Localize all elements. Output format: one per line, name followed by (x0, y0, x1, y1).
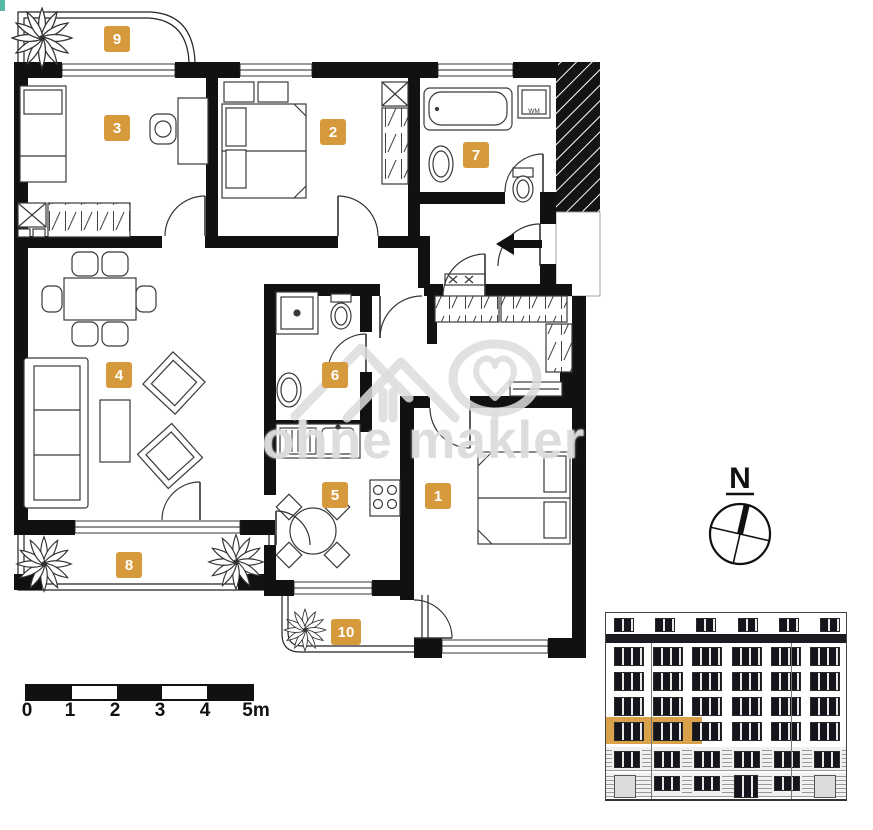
compass-north-label: N (729, 462, 751, 495)
attic-window (738, 618, 758, 632)
scale-tick-0: 0 (22, 700, 33, 722)
facade-window (771, 647, 801, 666)
facade-window (653, 647, 683, 666)
cornice-band (606, 634, 846, 643)
room-badge-7: 7 (463, 142, 489, 168)
room-badge-3: 3 (104, 115, 130, 141)
facade-window (692, 722, 722, 741)
room-badge-6: 6 (322, 362, 348, 388)
mezzanine-window (654, 751, 680, 768)
ground-window (694, 776, 720, 791)
nightstand (224, 82, 254, 102)
scale-tick-4: 4 (200, 700, 211, 722)
facade-window (810, 647, 840, 666)
kitchen-table (290, 508, 336, 554)
plant-icon (284, 609, 326, 651)
washing-machine-label: WM (528, 108, 540, 115)
attic-window (820, 618, 840, 632)
facade-window (692, 672, 722, 691)
pillow (544, 502, 566, 538)
room-badge-4: 4 (106, 362, 132, 388)
wardrobe (546, 324, 572, 372)
room-badge-5: 5 (322, 482, 348, 508)
attic-window (779, 618, 799, 632)
plant-icon (12, 8, 72, 68)
compass-icon: N (696, 452, 792, 582)
room-badge-8: 8 (116, 552, 142, 578)
armchair (143, 352, 205, 414)
chair (42, 286, 62, 312)
facade-window (692, 697, 722, 716)
facade-window (653, 697, 683, 716)
toilet (331, 294, 351, 302)
mezzanine-window (774, 751, 800, 768)
facade-window (810, 722, 840, 741)
pillow (24, 90, 62, 114)
entrance-door (614, 775, 636, 798)
desk (178, 98, 208, 164)
ground-band (606, 773, 846, 797)
facade-window (771, 697, 801, 716)
mezzanine-band (606, 747, 846, 771)
facade-seam (651, 643, 652, 799)
sink (322, 428, 354, 454)
wardrobe (48, 203, 130, 237)
armchair (138, 424, 203, 489)
facade-window (614, 672, 644, 691)
bathroom6-fixtures (276, 292, 351, 407)
dining-table (64, 278, 136, 320)
facade-window (771, 672, 801, 691)
chair (102, 322, 128, 346)
entrance-door (734, 775, 758, 798)
room-badge-2: 2 (320, 119, 346, 145)
pillow (226, 108, 246, 146)
ground-window (774, 776, 800, 791)
attic-window (614, 618, 634, 632)
room-badge-9: 9 (104, 26, 130, 52)
facade-window (692, 647, 722, 666)
scale-tick-5: 5m (242, 700, 269, 722)
facade-window (732, 722, 762, 741)
facade-window (810, 672, 840, 691)
pillow (226, 150, 246, 188)
entry-arrow-icon (496, 233, 542, 255)
chair (72, 252, 98, 276)
stairwell-block (556, 62, 600, 296)
facade-window (653, 672, 683, 691)
facade-window (732, 672, 762, 691)
room2-furniture (222, 82, 408, 198)
facade-window (732, 697, 762, 716)
building-elevation (605, 612, 847, 801)
floorplan-page: WM (0, 0, 873, 830)
stove (370, 480, 400, 516)
wardrobe (501, 296, 567, 322)
wardrobe (382, 108, 408, 184)
entrance-door (814, 775, 836, 798)
scale-tick-1: 1 (65, 700, 76, 722)
room-badge-10: 10 (331, 619, 361, 645)
facade-window (614, 647, 644, 666)
compass-needle (704, 498, 776, 570)
sideboard (445, 274, 485, 285)
ground-window (654, 776, 680, 791)
facade-window (732, 647, 762, 666)
chair (136, 286, 156, 312)
room-badge-1: 1 (425, 483, 451, 509)
chair (72, 322, 98, 346)
nightstand (258, 82, 288, 102)
mezzanine-window (814, 751, 840, 768)
bedroom1-furniture (478, 452, 570, 544)
wardrobe (435, 296, 499, 322)
facade-window (653, 722, 683, 741)
facade-window (614, 722, 644, 741)
mezzanine-window (614, 751, 640, 768)
chair (102, 252, 128, 276)
scale-tick-3: 3 (155, 700, 166, 722)
facade-window (771, 722, 801, 741)
pillow (544, 456, 566, 492)
facade-window (614, 697, 644, 716)
room3-furniture (18, 86, 208, 237)
facade-window (810, 697, 840, 716)
attic-window (696, 618, 716, 632)
scan-artifact (0, 0, 5, 11)
attic-window (655, 618, 675, 632)
scale-bar (25, 684, 254, 701)
facade-seam (791, 643, 792, 799)
coffee-table (100, 400, 130, 462)
scale-tick-2: 2 (110, 700, 121, 722)
mezzanine-window (734, 751, 760, 768)
mezzanine-window (694, 751, 720, 768)
